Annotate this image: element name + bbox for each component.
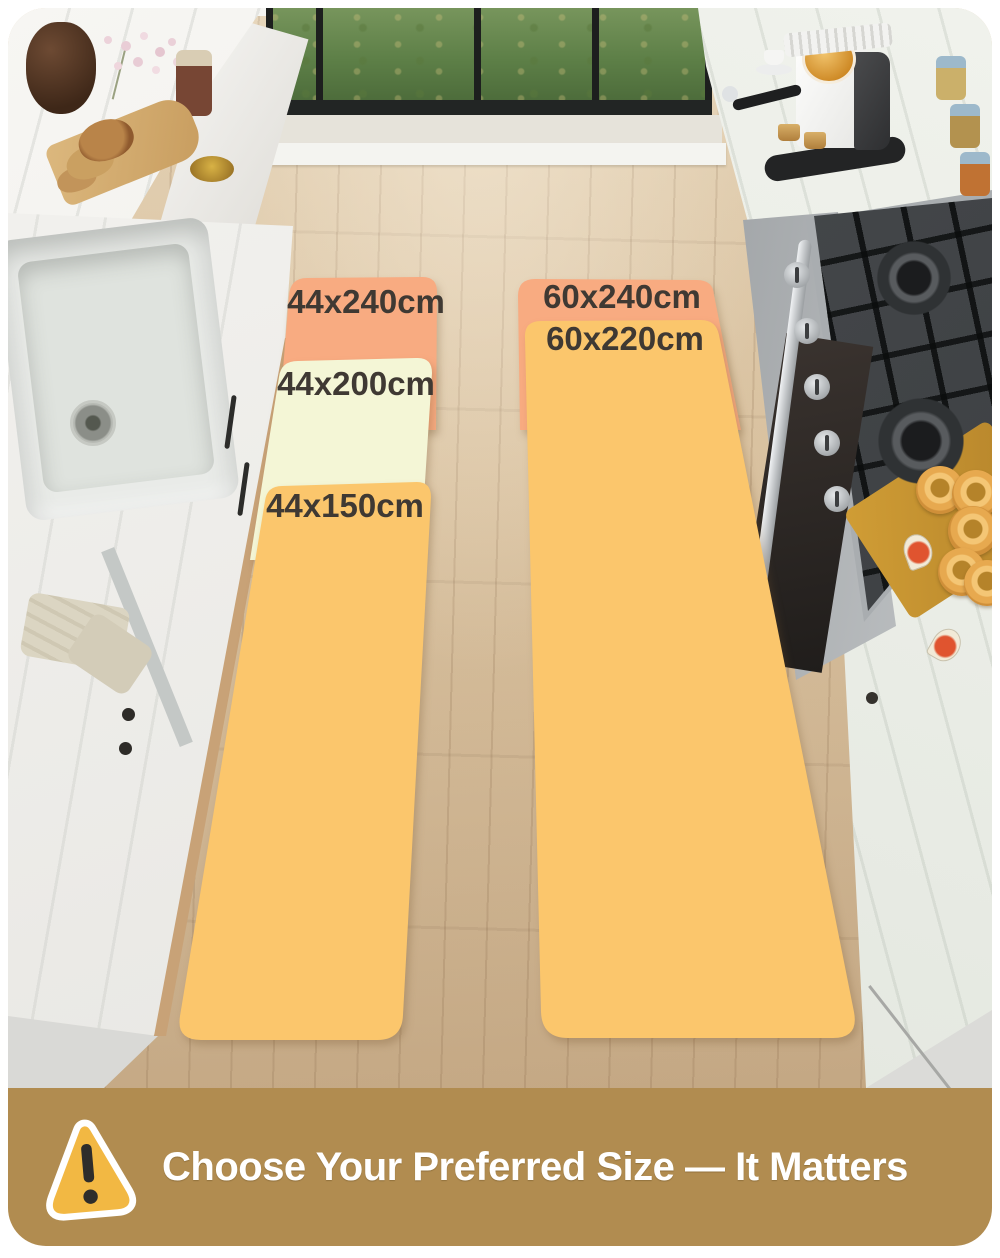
size-warning-banner: Choose Your Preferred Size — It Matters xyxy=(8,1088,992,1246)
rug-size-product-image: 44x240cm 44x200cm 44x150cm 60x240cm 60x2… xyxy=(0,0,1000,1258)
photo-card: 44x240cm 44x200cm 44x150cm 60x240cm 60x2… xyxy=(8,8,992,1246)
size-label-44x240: 44x240cm xyxy=(287,283,445,320)
banner-title: Choose Your Preferred Size — It Matters xyxy=(162,1145,908,1190)
rug-size-overlay: 44x240cm 44x200cm 44x150cm 60x240cm 60x2… xyxy=(8,8,992,1088)
size-label-60x220: 60x220cm xyxy=(546,320,704,357)
right-runner-220-section xyxy=(525,320,855,1038)
size-label-44x200: 44x200cm xyxy=(277,365,435,402)
left-runner-150-section xyxy=(179,482,431,1040)
warning-triangle-icon xyxy=(35,1109,140,1225)
warning-icon-wrap xyxy=(35,1109,140,1225)
size-label-44x150: 44x150cm xyxy=(266,487,424,524)
kitchen-scene: 44x240cm 44x200cm 44x150cm 60x240cm 60x2… xyxy=(8,8,992,1088)
size-label-60x240: 60x240cm xyxy=(543,278,701,315)
